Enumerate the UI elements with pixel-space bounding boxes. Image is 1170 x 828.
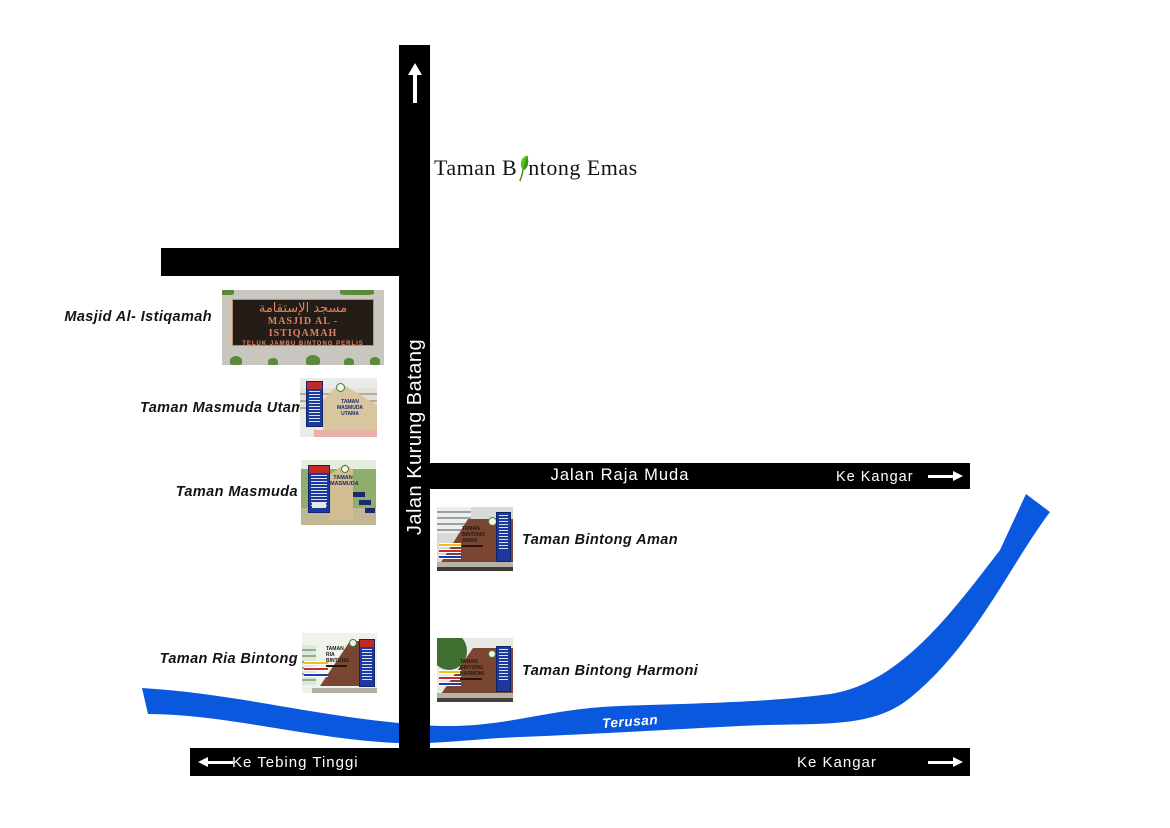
masjid-arabic-text: مسجد الإستقامة: [233, 301, 373, 316]
arrow-head: [953, 757, 963, 767]
monument-subtext-bar: [460, 678, 482, 680]
arrow-shaft: [928, 475, 953, 478]
jalan-raja-muda-label: Jalan Raja Muda: [470, 466, 770, 485]
masjid-location-text: TELUK JAMBU BINTONG PERLIS: [233, 340, 373, 348]
stripe-yellow: [304, 661, 328, 665]
monument-text-line: MASMUDA: [330, 481, 356, 487]
stripe-blue: [439, 682, 461, 686]
foliage-decoration: [222, 290, 234, 295]
monument-base: [314, 430, 377, 437]
title-part2: ntong Emas: [528, 155, 638, 181]
road-left-branch: [161, 248, 400, 276]
ground-strip: [437, 698, 513, 702]
monument-text: TAMAN BINTONG HARMONI: [460, 660, 484, 680]
arrow-up-stem: [413, 75, 417, 103]
monument-text: TAMAN BINTONG AMAN: [462, 527, 485, 547]
stripe-blue: [304, 673, 328, 677]
label-taman-masmuda: Taman Masmuda: [140, 484, 298, 500]
signboard-text-lines: [499, 649, 508, 680]
taman-masmuda-utama-sign-photo: TAMAN MASMUDA UTAMA: [300, 378, 377, 437]
arrow-shaft: [208, 761, 233, 764]
rules-signboard: [306, 381, 323, 427]
monument-text: TAMAN MASMUDA: [330, 475, 356, 488]
taman-ria-bintong-sign-photo: TAMAN RIA BINTONG: [302, 633, 377, 693]
rules-signboard: [496, 646, 511, 692]
stripe-blue: [439, 555, 461, 559]
monument-text-line: MASMUDA UTAMA: [328, 406, 372, 418]
ground-strip: [437, 567, 513, 571]
signboard-plate: [312, 502, 326, 508]
arrow-right-icon: [928, 757, 963, 767]
label-taman-ria-bintong: Taman Ria Bintong: [140, 651, 298, 667]
stripe-red: [304, 667, 328, 671]
arrow-head: [953, 471, 963, 481]
signboard-text-lines: [309, 391, 320, 422]
council-logo: [488, 650, 496, 658]
masjid-sign-photo: مسجد الإستقامة MASJID AL - ISTIQAMAH TEL…: [222, 290, 384, 365]
monument-text-line: HARMONI: [460, 672, 484, 678]
map-canvas: Terusan Jalan Kurung Batang Jalan Raja M…: [0, 0, 1170, 828]
arrow-right-icon: [928, 471, 963, 481]
page-title: Taman Bntong Emas: [434, 155, 638, 181]
grass-decoration: [268, 358, 278, 365]
arrow-left-icon: [198, 757, 233, 767]
council-logo: [349, 639, 357, 647]
monument-text: TAMAN MASMUDA UTAMA: [328, 400, 372, 417]
signboard-text-lines: [362, 649, 372, 681]
rules-signboard: [359, 639, 375, 687]
rules-signboard: [496, 512, 511, 562]
stripe-yellow: [439, 543, 461, 547]
signboard-header: [360, 640, 374, 647]
signboard-header: [309, 466, 329, 473]
label-taman-bintong-aman: Taman Bintong Aman: [522, 532, 678, 548]
taman-masmuda-sign-photo: TAMAN MASMUDA: [301, 460, 376, 525]
title-part1: Taman B: [434, 155, 517, 181]
signboard-header: [307, 382, 322, 389]
grass-decoration: [230, 356, 242, 365]
monument-subtext-bar: [462, 545, 483, 547]
arrow-up-icon: [407, 63, 422, 103]
masjid-signboard: مسجد الإستقامة MASJID AL - ISTIQAMAH TEL…: [232, 299, 374, 346]
masjid-name-text: MASJID AL - ISTIQAMAH: [233, 316, 373, 340]
label-masjid-al-istiqamah: Masjid Al- Istiqamah: [60, 309, 212, 325]
label-taman-bintong-harmoni: Taman Bintong Harmoni: [522, 663, 698, 679]
grass-decoration: [370, 357, 380, 365]
jalan-kurung-batang-label: Jalan Kurung Batang: [403, 327, 427, 547]
arrow-head: [198, 757, 208, 767]
arrow-shaft: [928, 761, 953, 764]
signboard-text-lines: [499, 515, 508, 549]
rules-signboard: [308, 465, 330, 513]
stripe-red: [439, 549, 461, 553]
monument-text-line: AMAN: [462, 539, 485, 545]
monument-text-line: BINTONG: [326, 659, 349, 665]
ke-kangar-label-rajamuda: Ke Kangar: [836, 469, 914, 485]
monument-text: TAMAN RIA BINTONG: [326, 647, 349, 667]
foliage-decoration: [340, 290, 374, 295]
stripe-red: [439, 676, 461, 680]
arrow-up-head: [408, 63, 422, 75]
ke-kangar-label-bottom: Ke Kangar: [797, 754, 877, 771]
monument-base: [312, 688, 377, 693]
council-logo: [341, 465, 349, 473]
grass-decoration: [344, 358, 354, 365]
taman-bintong-harmoni-sign-photo: TAMAN BINTONG HARMONI: [437, 638, 513, 702]
stripe-yellow: [439, 670, 461, 674]
ke-tebing-tinggi-label: Ke Tebing Tinggi: [232, 754, 359, 771]
council-logo: [336, 383, 345, 392]
monument-subtext-bar: [326, 665, 347, 667]
taman-bintong-aman-sign-photo: TAMAN BINTONG AMAN: [437, 507, 513, 571]
grass-decoration: [306, 355, 320, 365]
label-taman-masmuda-utama: Taman Masmuda Utama: [140, 400, 298, 416]
